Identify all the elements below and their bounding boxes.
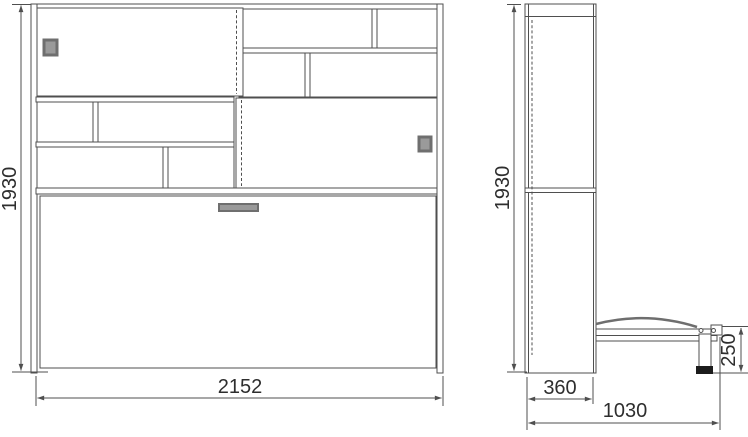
right-side-panel — [437, 4, 443, 373]
dimension-label-front-height: 1930 — [0, 167, 21, 212]
lower-left-shelf — [36, 142, 234, 147]
front-view: 1930 2152 — [0, 4, 443, 406]
dimension-front-width: 2152 — [36, 376, 443, 406]
bed-leg — [699, 334, 711, 367]
shelf-divider — [305, 53, 310, 97]
furniture-technical-drawing: 1930 2152 — [0, 0, 748, 437]
door-handle — [44, 40, 57, 55]
shelf-divider — [372, 9, 377, 48]
dimension-label-front-width: 2152 — [218, 376, 263, 398]
shelf-divider — [163, 147, 168, 188]
dimension-depth: 360 — [527, 377, 593, 430]
dimension-label-side-height: 1930 — [492, 166, 514, 211]
sliding-door-top-left — [37, 8, 243, 96]
bed-front-panel — [40, 196, 436, 368]
mattress-curve — [596, 318, 697, 327]
side-view: 1930 360 1030 250 — [492, 4, 748, 430]
bed-open-side — [596, 318, 722, 374]
bed-handle — [219, 204, 258, 211]
hinge-pin — [712, 329, 716, 333]
drawing-canvas: 1930 2152 — [0, 0, 748, 437]
dimension-label-depth: 360 — [543, 377, 576, 399]
dimension-side-height: 1930 — [492, 5, 527, 373]
sliding-door-bottom-right — [236, 98, 437, 188]
hinge-pin — [699, 329, 703, 333]
dimension-label-bed-length: 1030 — [603, 400, 648, 422]
cabinet-bottom-board — [36, 188, 437, 194]
leg-foot — [696, 366, 713, 374]
door-handle — [419, 137, 431, 151]
dimension-label-bed-height: 250 — [718, 333, 740, 366]
dimension-bed-height: 250 — [713, 327, 748, 374]
panel-divider — [525, 188, 596, 193]
upper-right-shelf — [239, 48, 437, 53]
shelf-divider — [93, 102, 98, 142]
